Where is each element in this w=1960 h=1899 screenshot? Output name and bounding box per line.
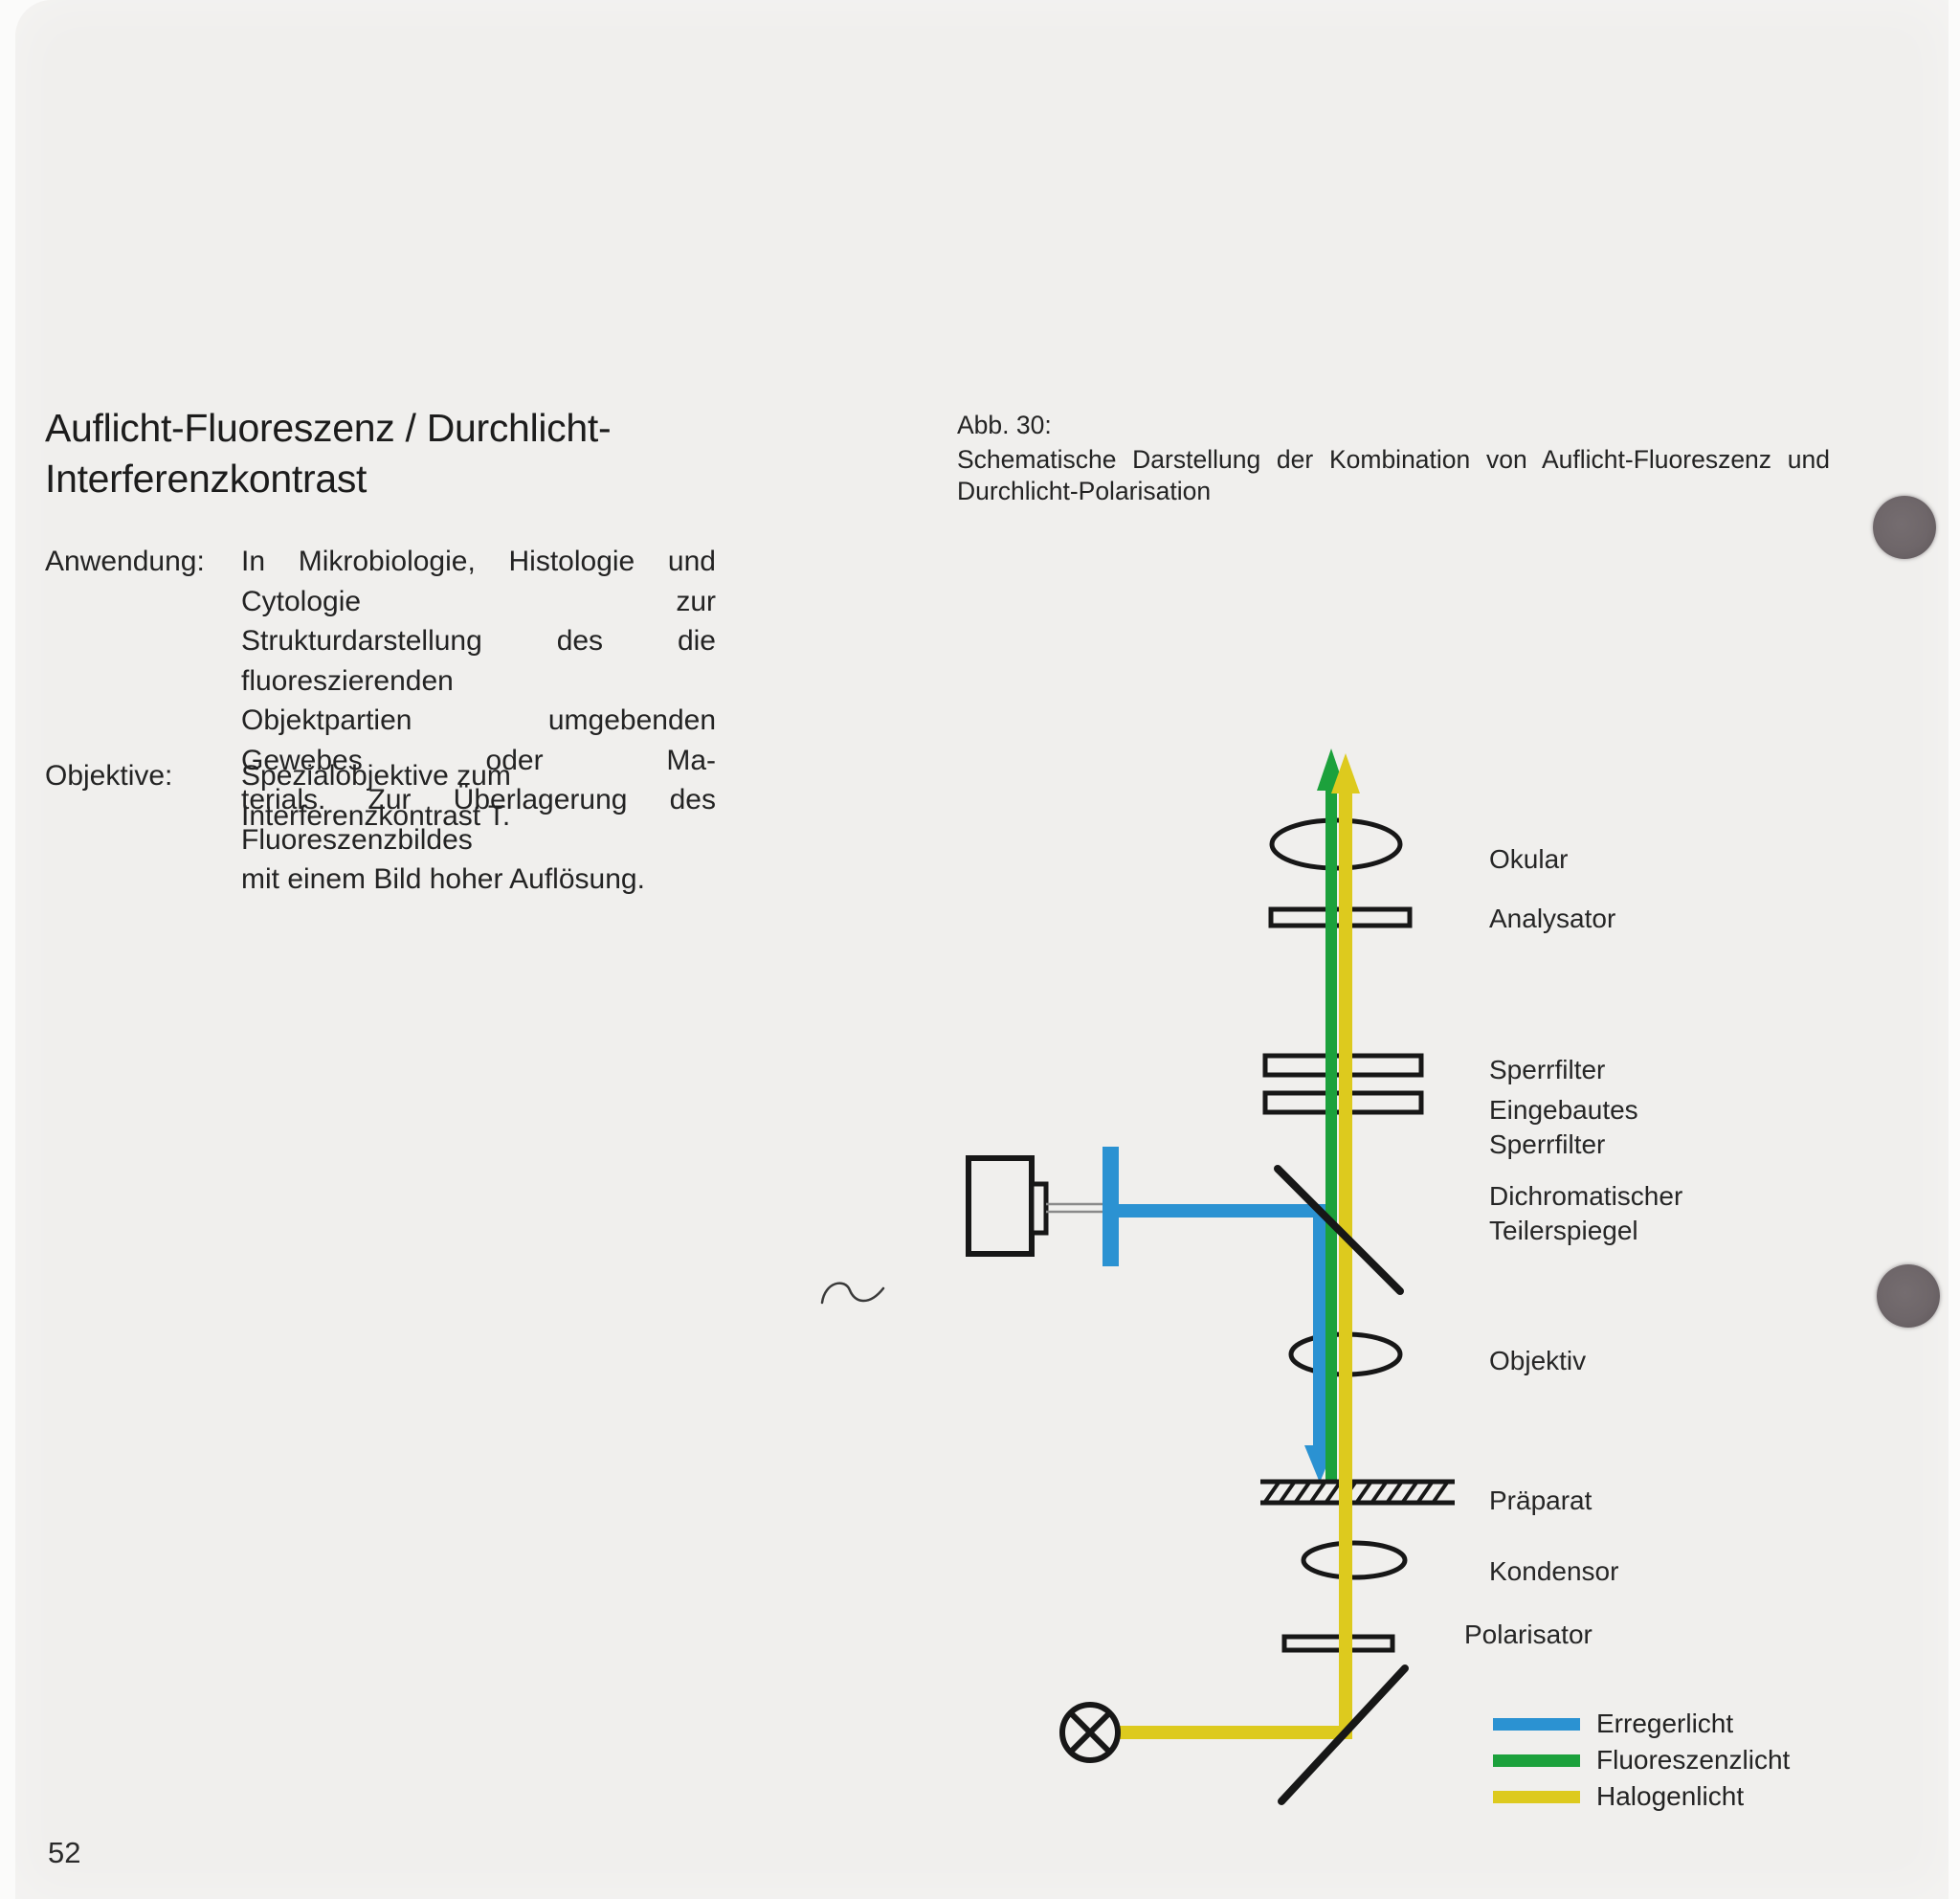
exciter-filter-icon [1102, 1147, 1119, 1266]
halogen-lamp-icon [1062, 1705, 1118, 1760]
praeparat-stage-icon [1260, 1482, 1455, 1503]
legend-row-fluoreszenzlicht: Fluoreszenzlicht [1493, 1748, 1790, 1773]
label-sperrfilter: Sperrfilter [1489, 1053, 1605, 1087]
section-text-objektive: Spezialobjektive zum Interferenzkontrast… [241, 756, 716, 836]
section-objektive: Objektive: Spezialobjektive zum Interfer… [45, 756, 716, 836]
label-analysator: Analysator [1489, 902, 1615, 936]
label-kondensor: Kondensor [1489, 1554, 1618, 1589]
legend: Erregerlicht Fluoreszenzlicht Halogenlic… [1493, 1711, 1790, 1809]
label-okular: Okular [1489, 842, 1568, 877]
microscope-schematic-diagram [957, 737, 1493, 1857]
figure-caption-text: Schematische Darstellung der Kombination… [957, 444, 1830, 508]
excitation-beam [1102, 1147, 1335, 1483]
legend-swatch-erregerlicht [1493, 1718, 1580, 1731]
page-number: 52 [48, 1836, 80, 1870]
legend-row-halogenlicht: Halogenlicht [1493, 1784, 1790, 1809]
legend-label-fluoreszenzlicht: Fluoreszenzlicht [1596, 1745, 1790, 1776]
legend-label-halogenlicht: Halogenlicht [1596, 1781, 1744, 1812]
section-anwendung: Anwendung: In Mikrobiologie, Histologie … [45, 542, 716, 900]
section-label-anwendung: Anwendung: [45, 542, 241, 900]
figure-caption: Abb. 30: Schematische Darstellung der Ko… [957, 410, 1830, 508]
polarisator-filter-icon [1284, 1637, 1392, 1650]
legend-label-erregerlicht: Erregerlicht [1596, 1709, 1733, 1739]
section-text-anwendung: In Mikrobiologie, Histologie und Cytolog… [241, 542, 716, 900]
epi-lamp-housing-icon [969, 1158, 1102, 1254]
page-title: Auflicht-Fluoreszenz / Durchlicht-Interf… [45, 403, 611, 504]
punch-hole-top [1873, 496, 1936, 559]
handwritten-squiggle [818, 1276, 895, 1319]
kondensor-lens-icon [1303, 1543, 1405, 1577]
section-label-objektive: Objektive: [45, 756, 241, 836]
label-dichromatischer-teilerspiegel: Dichromatischer Teilerspiegel [1489, 1179, 1682, 1248]
label-objektiv: Objektiv [1489, 1344, 1586, 1378]
legend-swatch-fluoreszenzlicht [1493, 1754, 1580, 1767]
label-eingebautes-sperrfilter: Eingebautes Sperrfilter [1489, 1093, 1638, 1162]
legend-swatch-halogenlicht [1493, 1791, 1580, 1803]
legend-row-erregerlicht: Erregerlicht [1493, 1711, 1790, 1736]
scanned-page: Auflicht-Fluoreszenz / Durchlicht-Interf… [0, 0, 1960, 1899]
punch-hole-bottom [1877, 1264, 1940, 1328]
label-praeparat: Präparat [1489, 1484, 1592, 1518]
label-polarisator: Polarisator [1464, 1618, 1592, 1652]
figure-caption-label: Abb. 30: [957, 410, 1830, 442]
